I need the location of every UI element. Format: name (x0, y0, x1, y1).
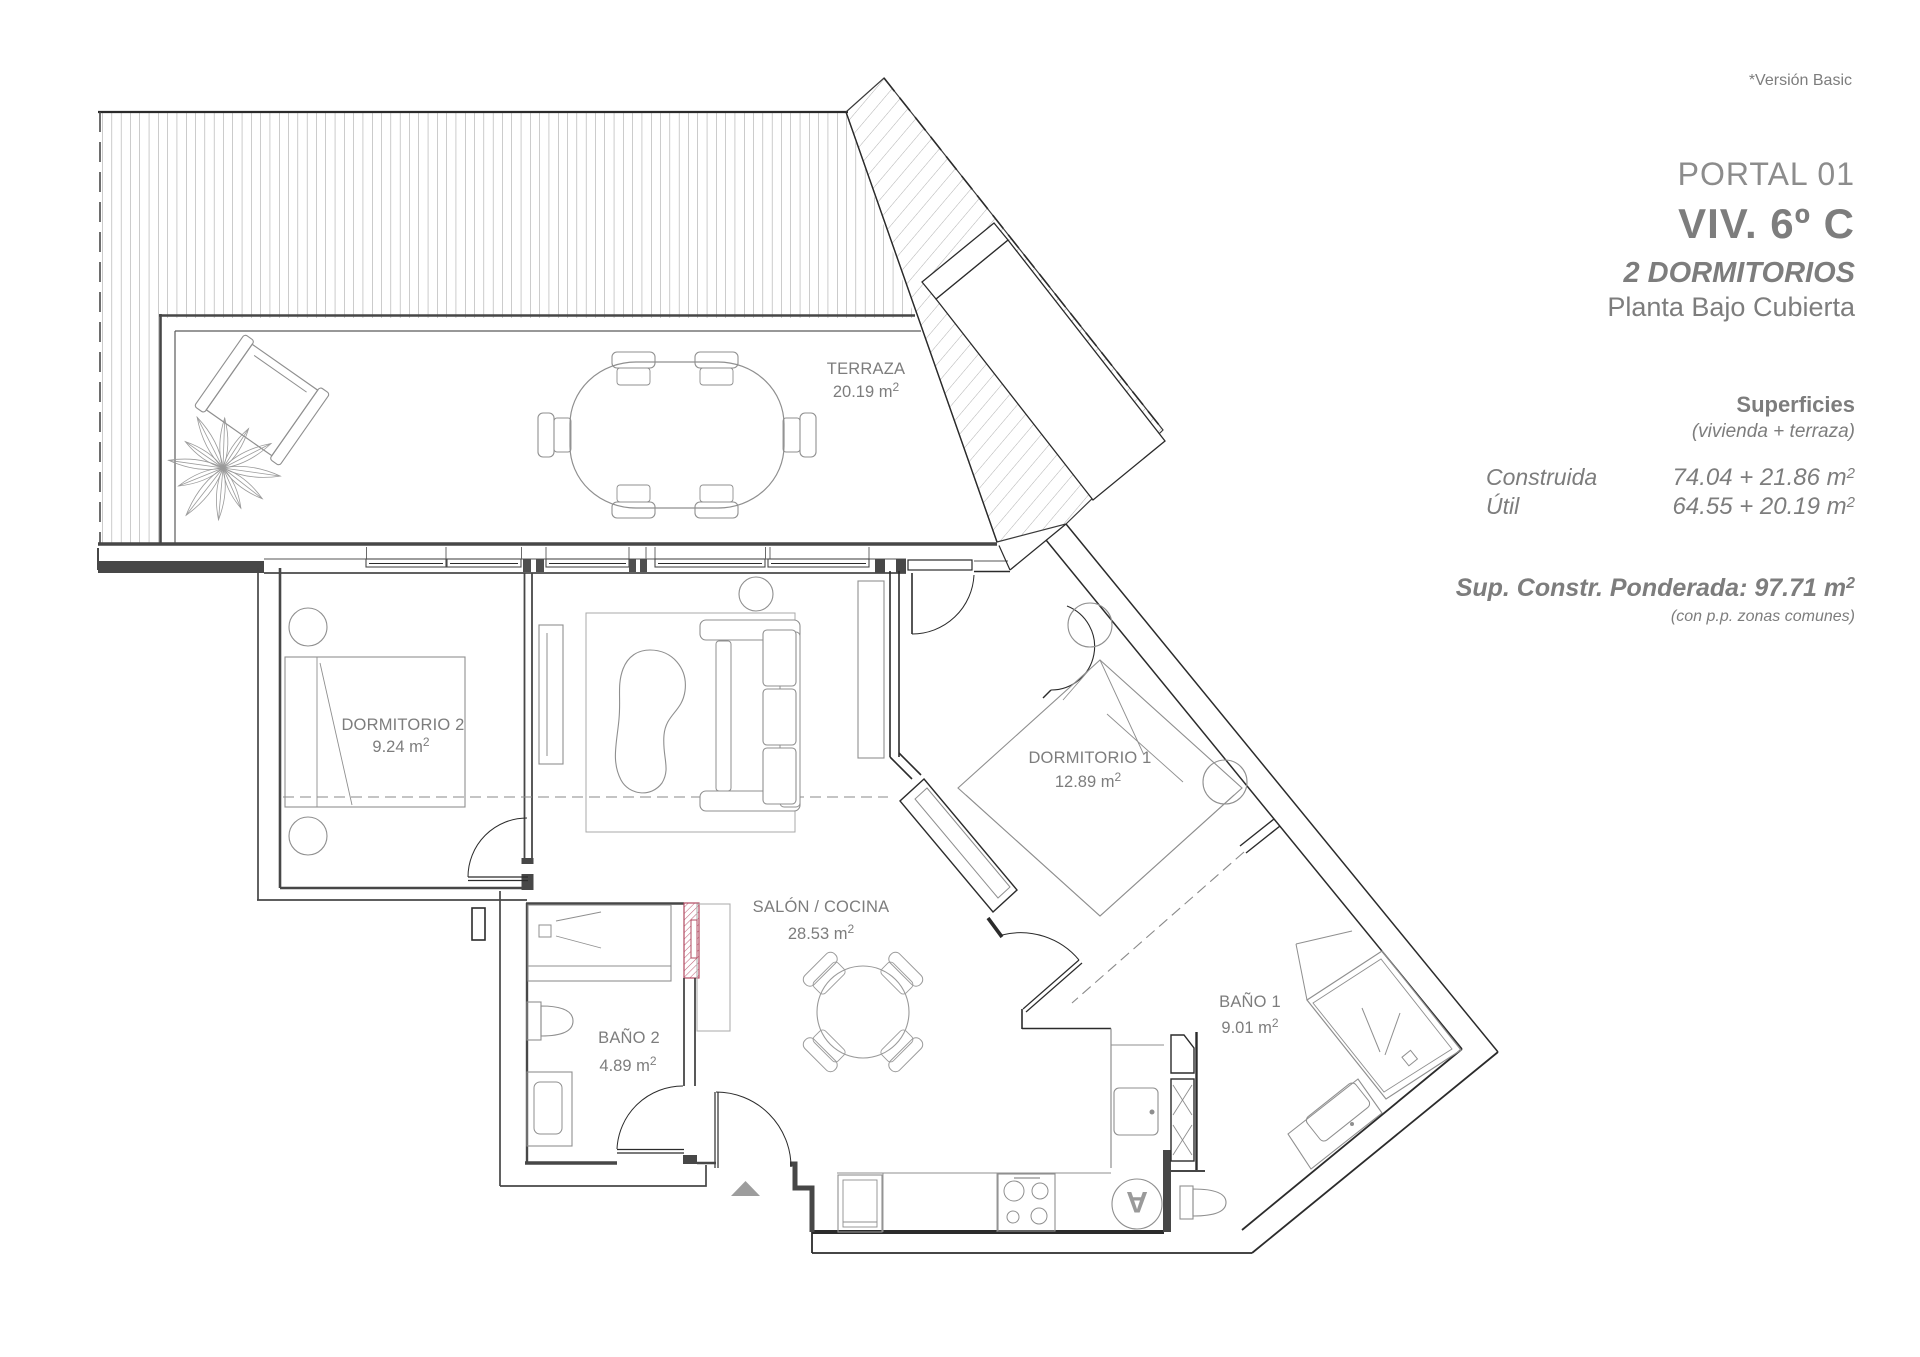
svg-text:A: A (1126, 1185, 1148, 1218)
svg-text:BAÑO 2: BAÑO 2 (598, 1027, 660, 1047)
svg-text:VIV. 6º C: VIV. 6º C (1678, 200, 1855, 247)
svg-text:28.53 m2: 28.53 m2 (788, 922, 855, 943)
svg-text:20.19 m2: 20.19 m2 (833, 380, 900, 401)
svg-text:TERRAZA: TERRAZA (827, 360, 905, 378)
svg-text:DORMITORIO 2: DORMITORIO 2 (341, 716, 464, 734)
svg-text:Útil: Útil (1486, 493, 1520, 519)
svg-text:12.89 m2: 12.89 m2 (1055, 770, 1122, 791)
svg-text:2 DORMITORIOS: 2 DORMITORIOS (1623, 257, 1856, 289)
svg-text:74.04 + 21.86 m2: 74.04 + 21.86 m2 (1673, 464, 1856, 491)
svg-text:*Versión Basic: *Versión Basic (1749, 72, 1852, 89)
svg-text:Planta Bajo Cubierta: Planta Bajo Cubierta (1607, 292, 1856, 322)
svg-text:PORTAL 01: PORTAL 01 (1678, 156, 1855, 192)
svg-text:4.89 m2: 4.89 m2 (599, 1054, 656, 1075)
svg-text:64.55 + 20.19 m2: 64.55 + 20.19 m2 (1673, 493, 1856, 520)
svg-text:9.24 m2: 9.24 m2 (372, 735, 429, 756)
svg-text:(con p.p. zonas comunes): (con p.p. zonas comunes) (1671, 608, 1855, 625)
svg-text:SALÓN / COCINA: SALÓN / COCINA (753, 897, 890, 916)
svg-text:(vivienda + terraza): (vivienda + terraza) (1692, 421, 1855, 442)
svg-text:9.01 m2: 9.01 m2 (1221, 1016, 1278, 1037)
svg-text:Superficies: Superficies (1736, 392, 1855, 417)
svg-text:DORMITORIO 1: DORMITORIO 1 (1028, 749, 1151, 767)
svg-text:Sup. Constr. Ponderada: 97.71: Sup. Constr. Ponderada: 97.71 m2 (1456, 574, 1855, 602)
svg-text:Construida: Construida (1486, 464, 1597, 490)
svg-text:BAÑO 1: BAÑO 1 (1219, 991, 1281, 1011)
